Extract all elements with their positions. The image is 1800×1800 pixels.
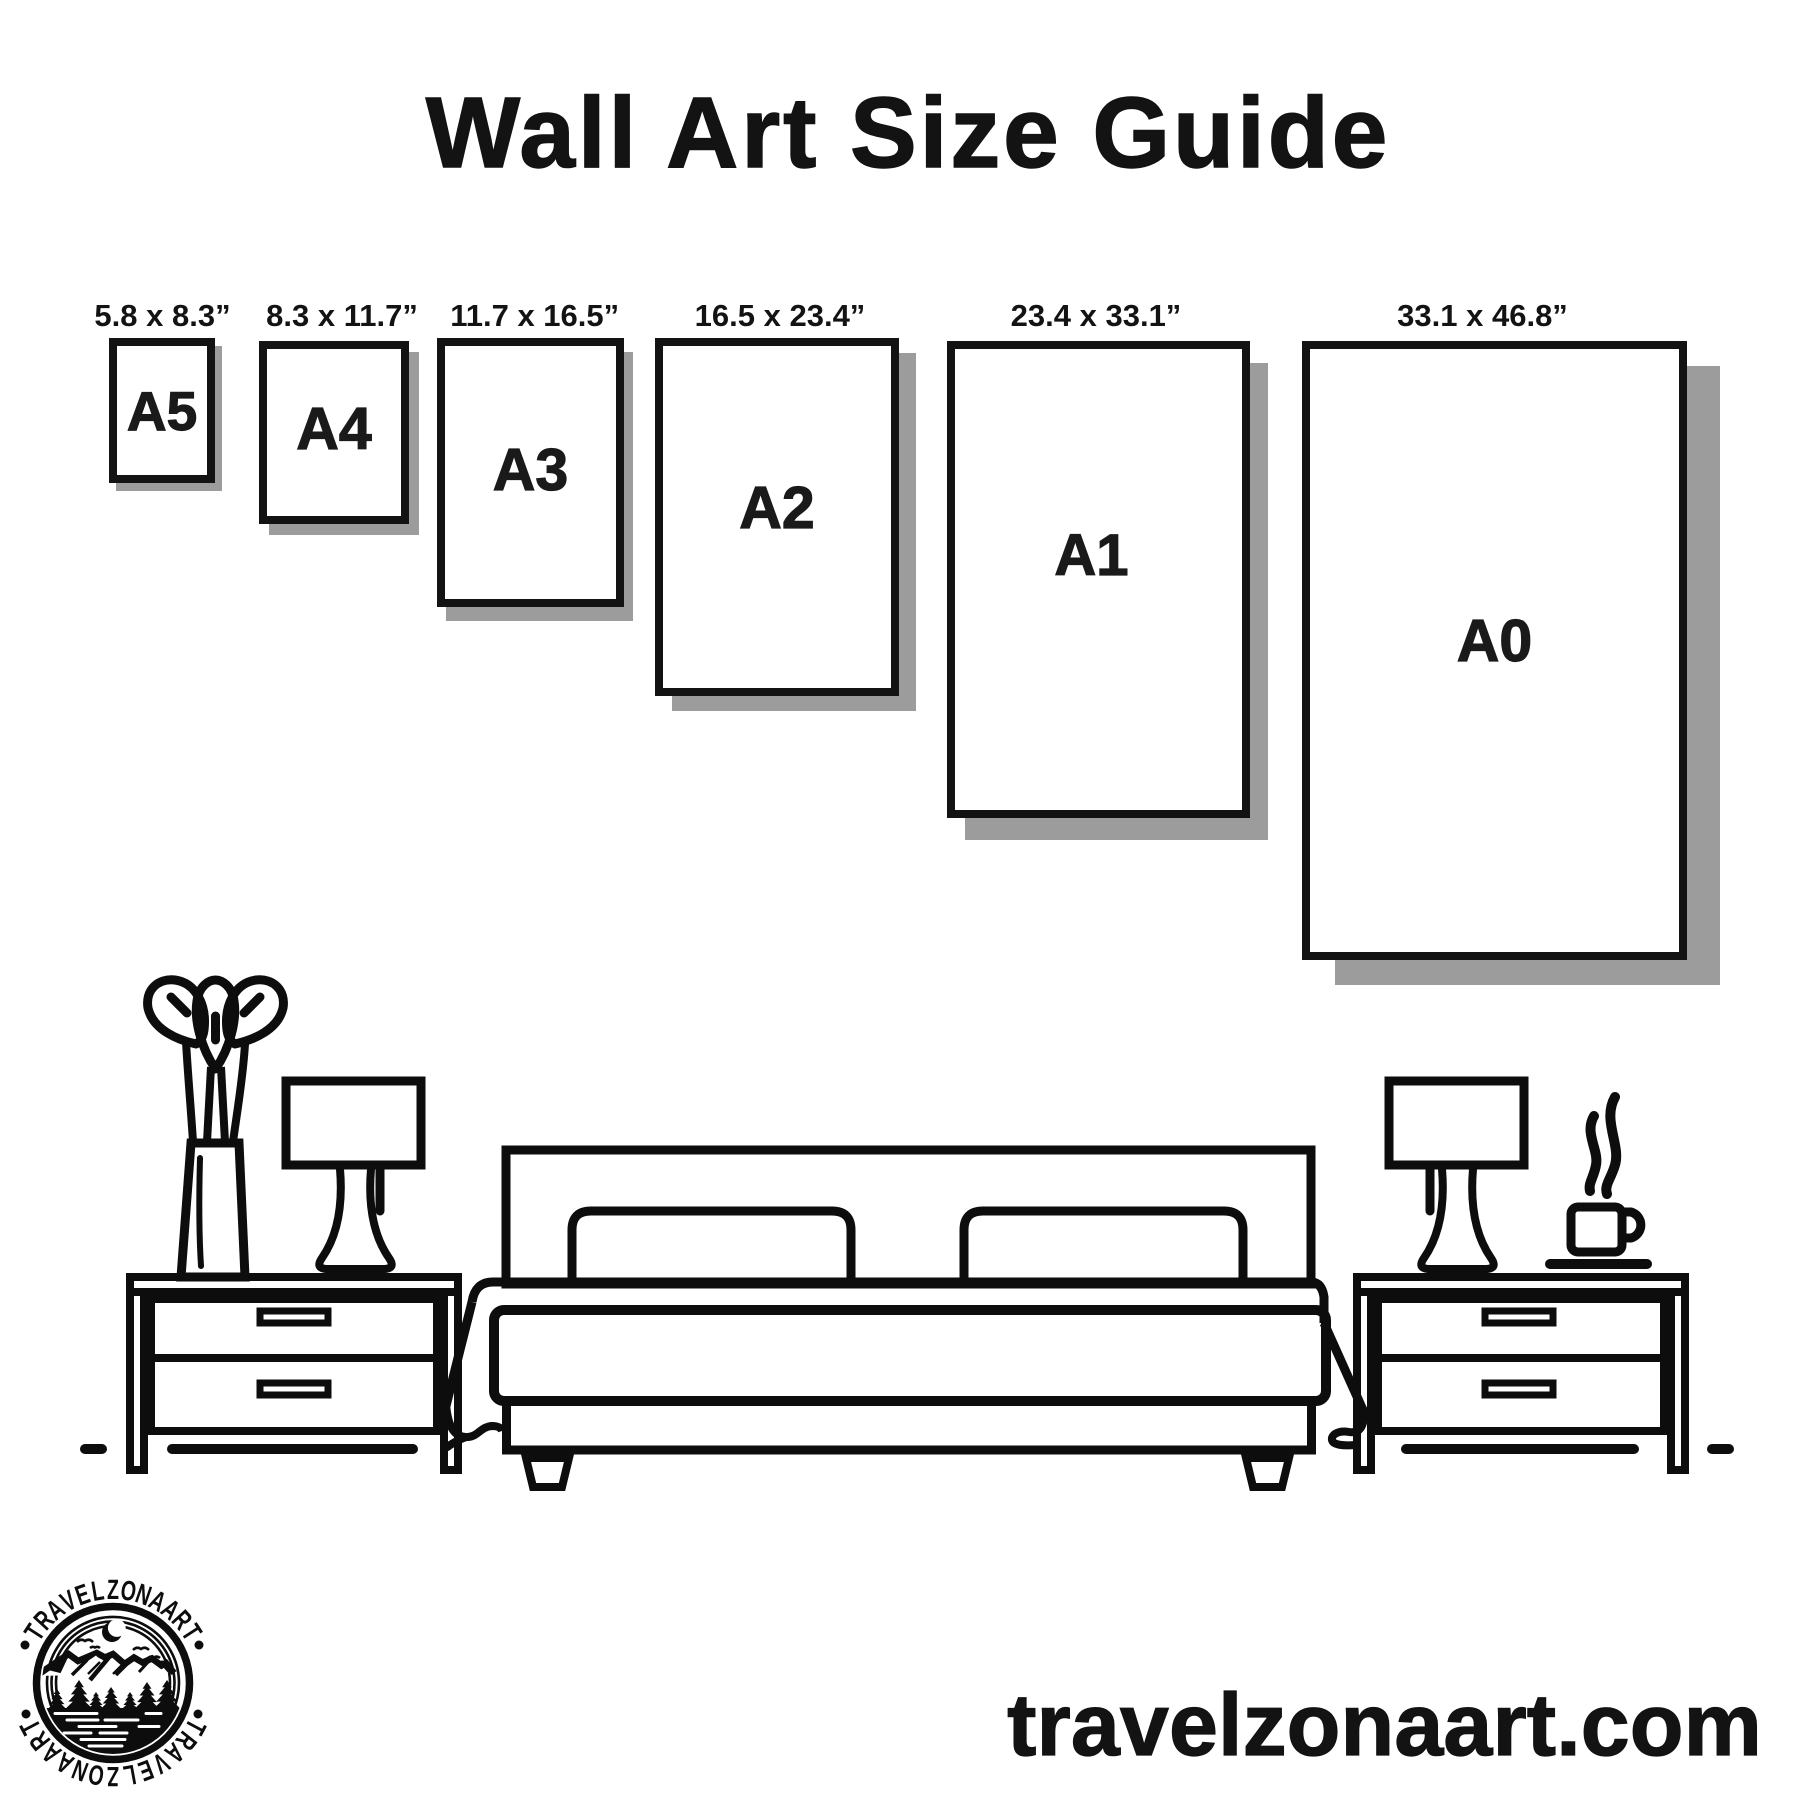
svg-text:Z: Z — [107, 1574, 119, 1605]
svg-text:5.8 x 8.3”: 5.8 x 8.3” — [94, 298, 230, 333]
svg-text:11.7 x 16.5”: 11.7 x 16.5” — [450, 298, 619, 333]
svg-text:16.5 x 23.4”: 16.5 x 23.4” — [695, 298, 866, 333]
svg-text:8.3 x 11.7”: 8.3 x 11.7” — [266, 298, 418, 333]
svg-text:33.1 x 46.8”: 33.1 x 46.8” — [1397, 298, 1568, 333]
svg-text:23.4 x 33.1”: 23.4 x 33.1” — [1011, 298, 1182, 333]
